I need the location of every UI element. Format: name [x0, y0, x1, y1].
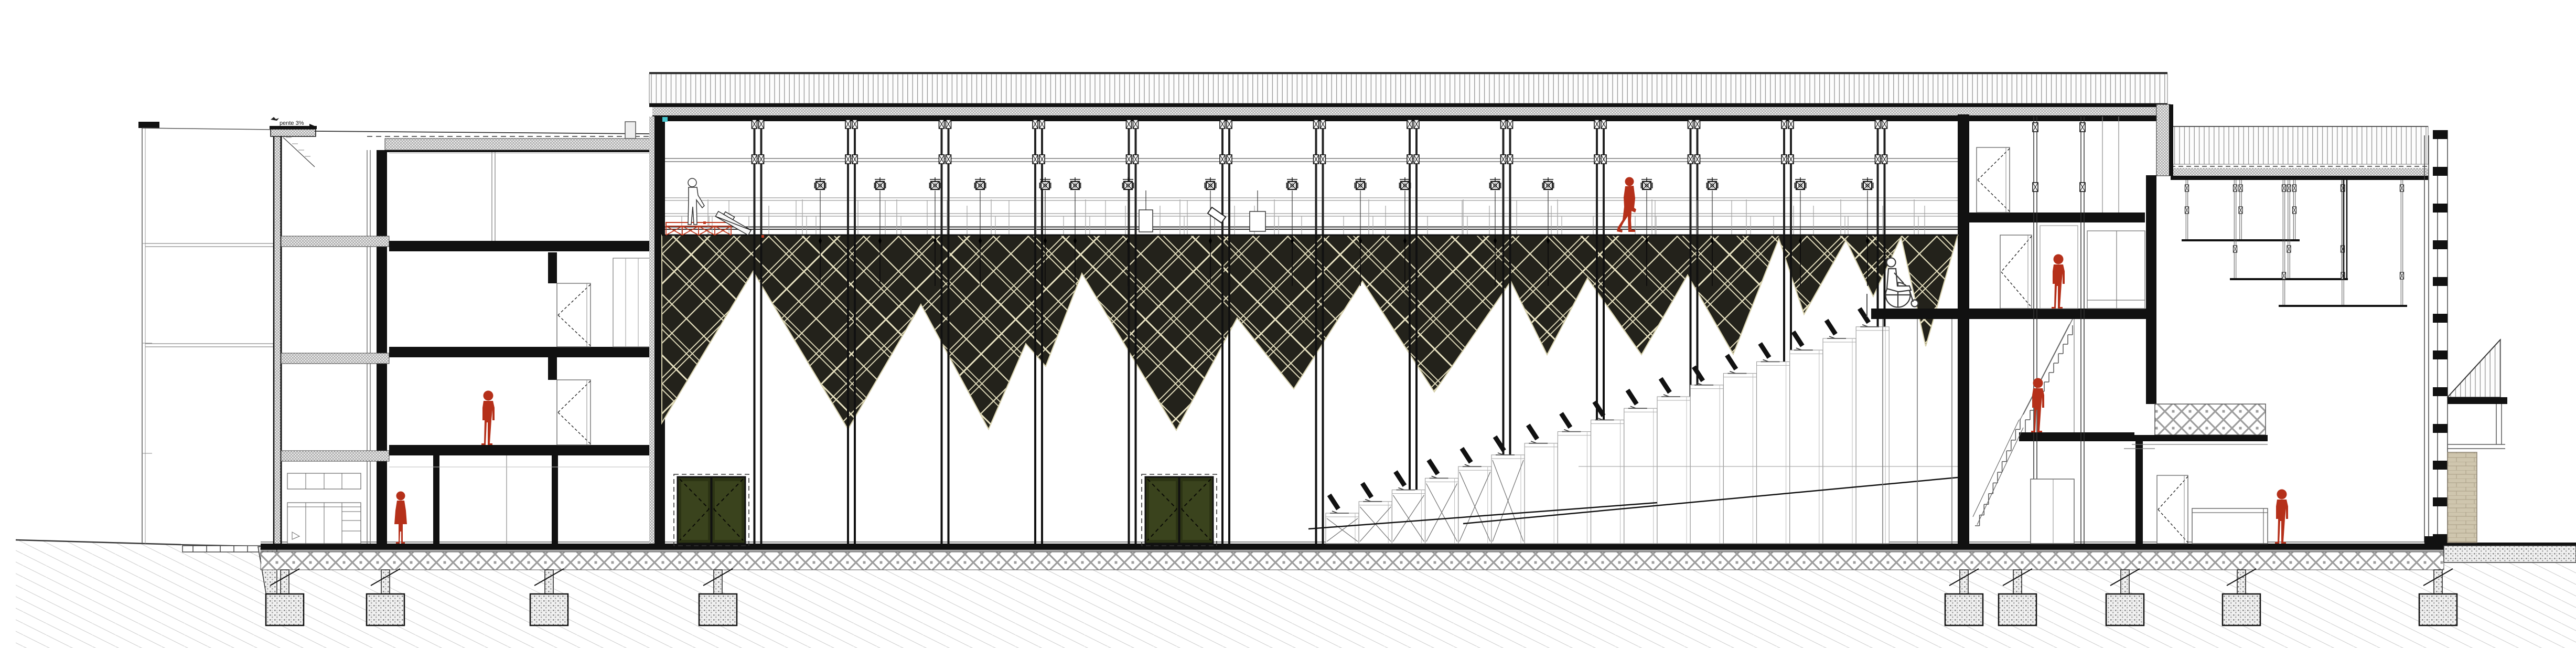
- svg-text:pente 3%: pente 3%: [280, 120, 304, 126]
